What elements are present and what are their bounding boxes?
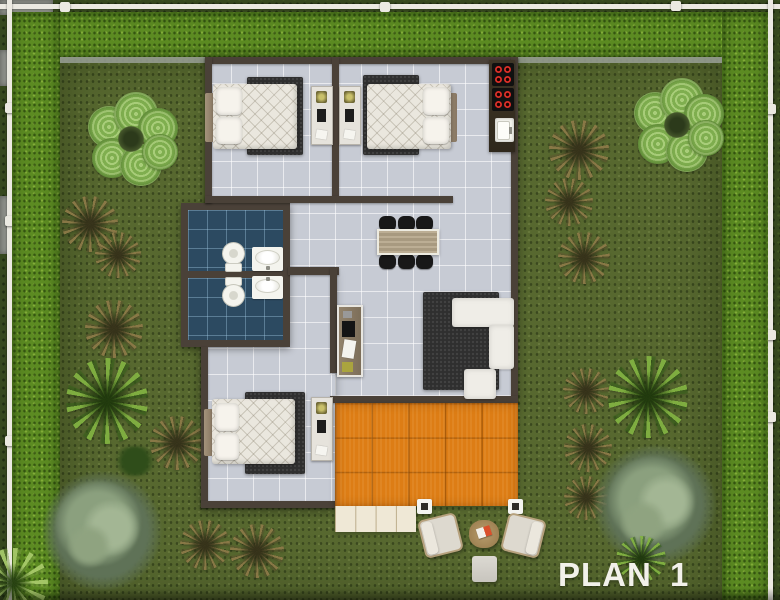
pillow bbox=[216, 117, 242, 144]
brown-palm bbox=[95, 232, 141, 278]
burner bbox=[504, 91, 511, 98]
green-plant bbox=[66, 358, 148, 444]
brown-palm bbox=[180, 520, 230, 570]
fence-post bbox=[60, 2, 70, 12]
bathroom-sink bbox=[252, 247, 283, 271]
sink-basin bbox=[255, 279, 280, 293]
faucet bbox=[266, 266, 270, 270]
burner bbox=[495, 101, 502, 108]
stove-top bbox=[492, 63, 514, 86]
palm-frond bbox=[688, 120, 724, 156]
brown-palm bbox=[558, 232, 610, 284]
stove-top bbox=[492, 88, 514, 111]
fence-post bbox=[671, 1, 681, 11]
hedge-right bbox=[722, 12, 768, 600]
wall-top bbox=[205, 57, 518, 64]
deck-light bbox=[417, 499, 432, 514]
clock bbox=[345, 109, 354, 122]
palm-core bbox=[118, 126, 144, 152]
clock bbox=[317, 420, 326, 433]
wall-bedrooms-bottom bbox=[205, 196, 453, 203]
toilet-bowl bbox=[222, 242, 245, 265]
armchair-back bbox=[420, 521, 439, 556]
dining-chair bbox=[398, 254, 415, 269]
palm-tree bbox=[630, 78, 726, 174]
floor-plan-scene: PLAN 1 bbox=[0, 0, 780, 600]
sofa-armchair bbox=[464, 369, 496, 399]
toilet-tank bbox=[225, 263, 242, 272]
fence-post bbox=[380, 2, 390, 12]
brown-palm bbox=[85, 300, 143, 358]
dining-chair bbox=[416, 254, 433, 269]
palm-core bbox=[664, 112, 690, 138]
tv-cabinet bbox=[337, 305, 363, 377]
sofa-right bbox=[489, 325, 514, 369]
fence-right bbox=[768, 0, 773, 600]
palm-frond bbox=[142, 134, 178, 170]
brown-palm bbox=[150, 416, 204, 470]
brown-palm bbox=[563, 368, 609, 414]
lamp bbox=[316, 402, 327, 414]
deck bbox=[335, 403, 518, 506]
lamp bbox=[316, 91, 327, 103]
burner bbox=[495, 76, 502, 83]
faucet bbox=[266, 277, 270, 281]
sofa-top bbox=[452, 298, 514, 327]
bathroom-block bbox=[181, 203, 290, 347]
bedroom2-nightstand bbox=[339, 86, 361, 145]
lamp bbox=[344, 91, 355, 103]
palm-tree bbox=[84, 92, 180, 188]
burner bbox=[495, 66, 502, 73]
deck-light-core bbox=[512, 503, 519, 510]
paper bbox=[343, 129, 355, 140]
pillow bbox=[216, 87, 242, 115]
brown-palm bbox=[545, 178, 593, 226]
tv bbox=[342, 321, 355, 337]
dining-table bbox=[377, 229, 439, 255]
brown-palm bbox=[549, 120, 609, 180]
pillow bbox=[215, 403, 239, 431]
kitchen-sink bbox=[495, 118, 514, 142]
bedroom3-nightstand bbox=[311, 397, 333, 461]
wall-hall-vertical bbox=[330, 268, 337, 373]
burner bbox=[504, 76, 511, 83]
pillow bbox=[215, 433, 239, 460]
stone-path bbox=[335, 506, 416, 532]
burner bbox=[504, 101, 511, 108]
sink-basin bbox=[255, 250, 280, 265]
bathroom-sink bbox=[252, 276, 283, 299]
burner bbox=[495, 91, 502, 98]
tree-foliage bbox=[67, 524, 111, 568]
wall-bedroom3-bottom bbox=[201, 501, 335, 508]
faucet bbox=[509, 127, 512, 134]
deck-light-core bbox=[421, 503, 428, 510]
paper bbox=[315, 129, 327, 140]
gray-green-tree bbox=[43, 466, 161, 596]
plan-title: PLAN 1 bbox=[558, 556, 689, 594]
small-item bbox=[343, 311, 352, 318]
hedge-top bbox=[12, 12, 768, 57]
dining-chair bbox=[379, 254, 396, 269]
clock bbox=[317, 109, 326, 122]
papers bbox=[342, 339, 357, 359]
brown-palm bbox=[230, 524, 284, 578]
green-plant bbox=[608, 356, 688, 438]
pillow bbox=[423, 117, 449, 144]
bedroom1-nightstand bbox=[311, 86, 333, 145]
outdoor-pouf bbox=[472, 556, 497, 582]
burner bbox=[504, 66, 511, 73]
paper bbox=[315, 445, 327, 456]
wall-bedroom-divider bbox=[332, 57, 339, 198]
box bbox=[342, 362, 353, 372]
pillow bbox=[423, 87, 449, 115]
toilet-bowl bbox=[222, 284, 245, 307]
fence-top bbox=[0, 4, 780, 9]
deck-light bbox=[508, 499, 523, 514]
